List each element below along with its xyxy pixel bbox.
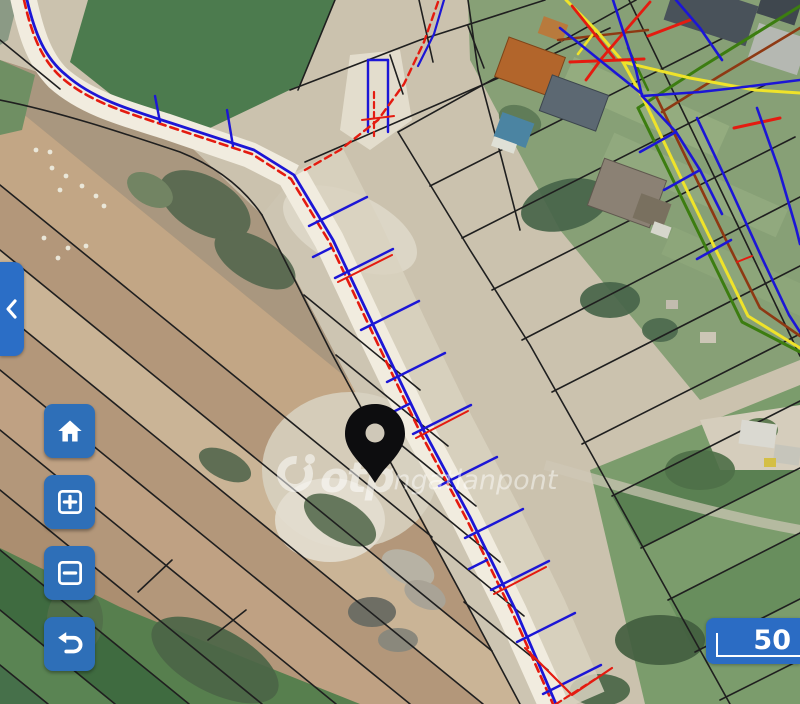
scale-value: 50 bbox=[753, 626, 791, 656]
home-icon bbox=[56, 417, 84, 445]
watermark-brand-rest: ingatlanpont bbox=[386, 465, 559, 496]
home-button[interactable] bbox=[44, 404, 95, 458]
map-scale-indicator: 50 bbox=[706, 618, 800, 664]
zoom-in-button[interactable] bbox=[44, 475, 95, 529]
collapse-sidebar-button[interactable] bbox=[0, 262, 24, 356]
undo-icon bbox=[55, 629, 85, 659]
map-viewer: otp ingatlanpont bbox=[0, 0, 800, 704]
zoom-out-button[interactable] bbox=[44, 546, 95, 600]
zoom-out-icon bbox=[55, 558, 85, 588]
undo-button[interactable] bbox=[44, 617, 95, 671]
map-canvas[interactable]: otp ingatlanpont bbox=[0, 0, 800, 704]
chevron-left-icon bbox=[4, 296, 20, 322]
zoom-in-icon bbox=[55, 487, 85, 517]
